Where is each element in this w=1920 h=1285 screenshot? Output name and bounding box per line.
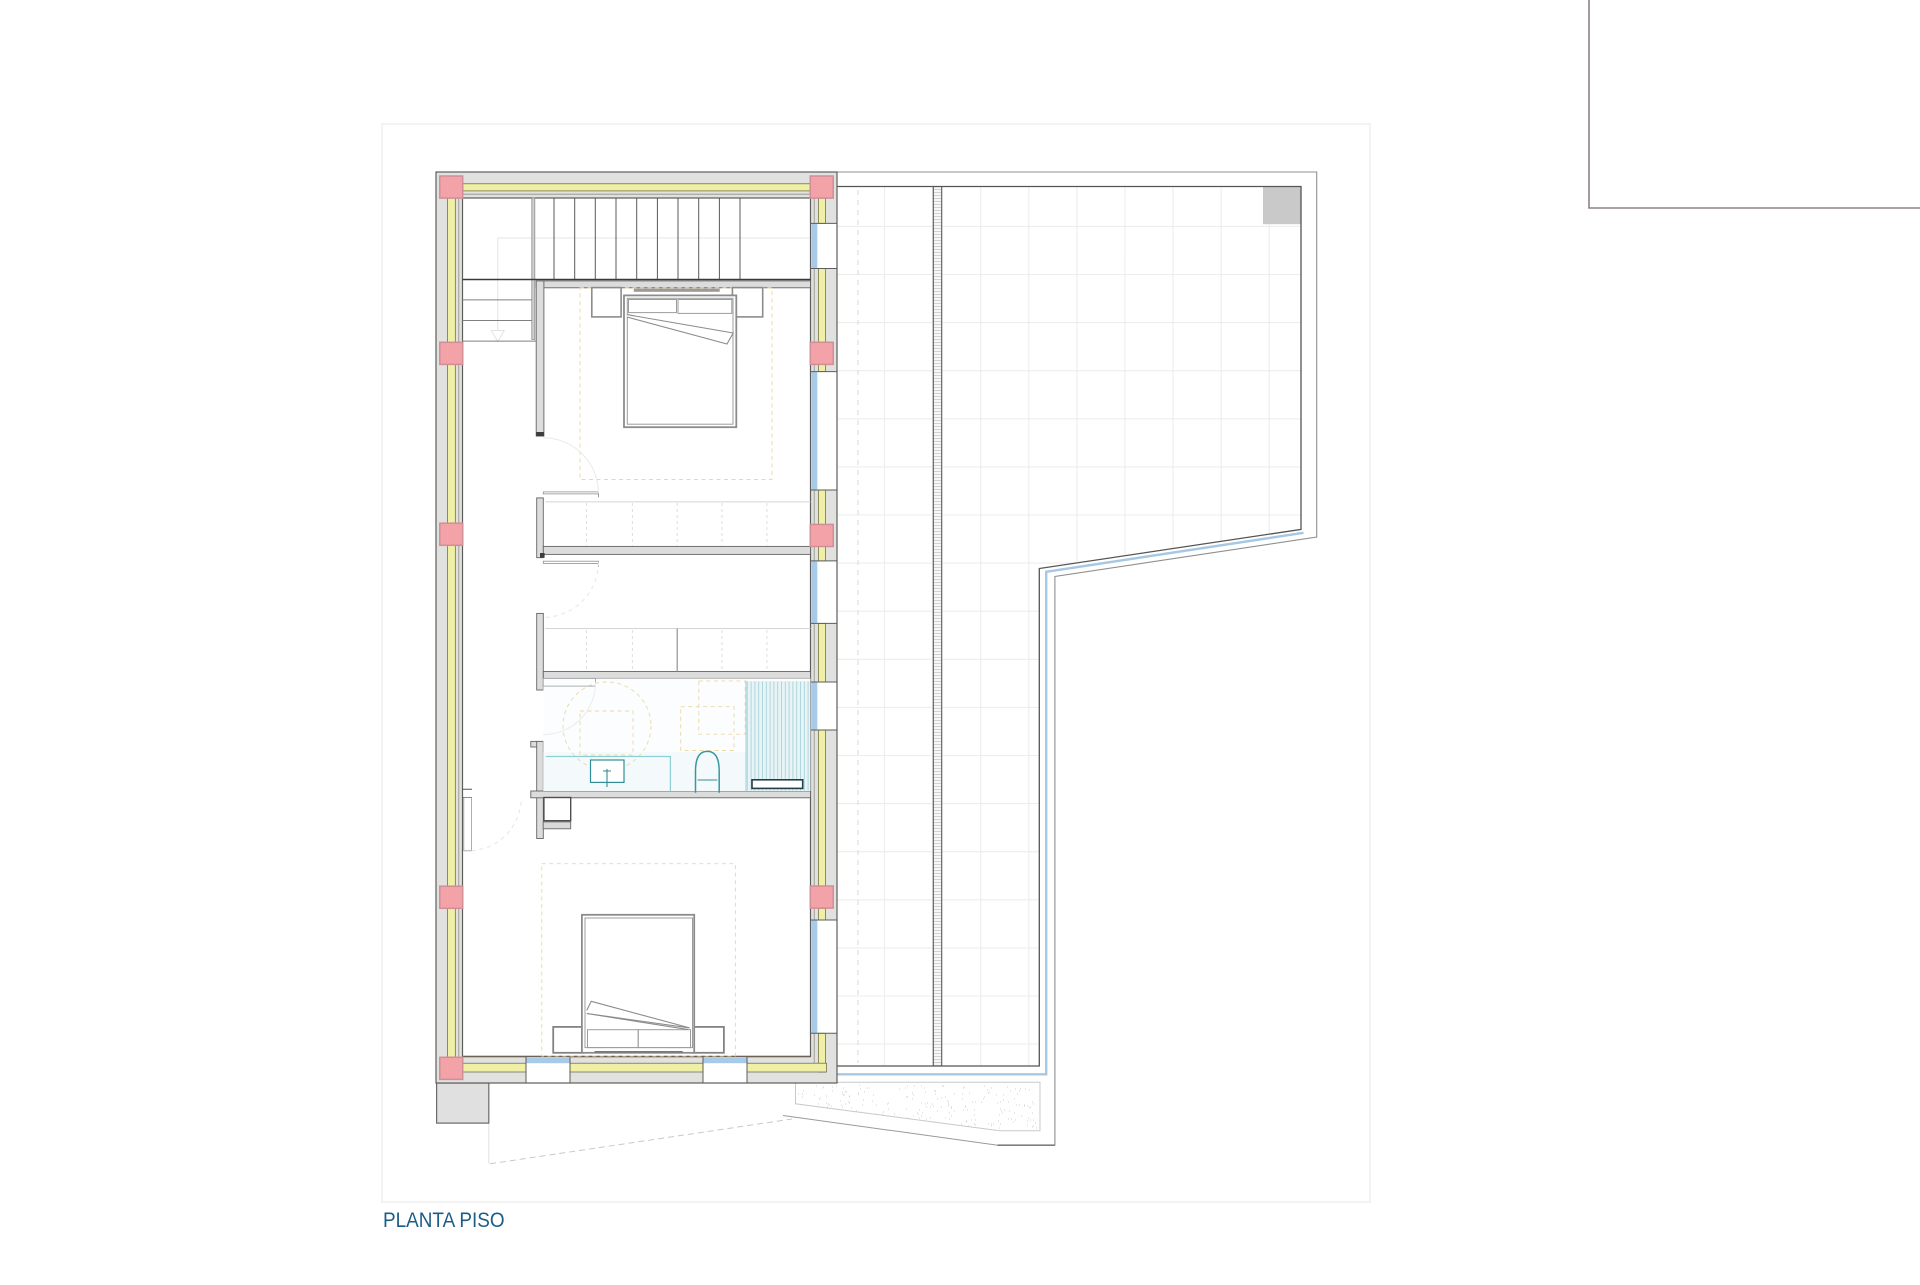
svg-text:PLANTA PISO: PLANTA PISO [383, 1209, 505, 1232]
